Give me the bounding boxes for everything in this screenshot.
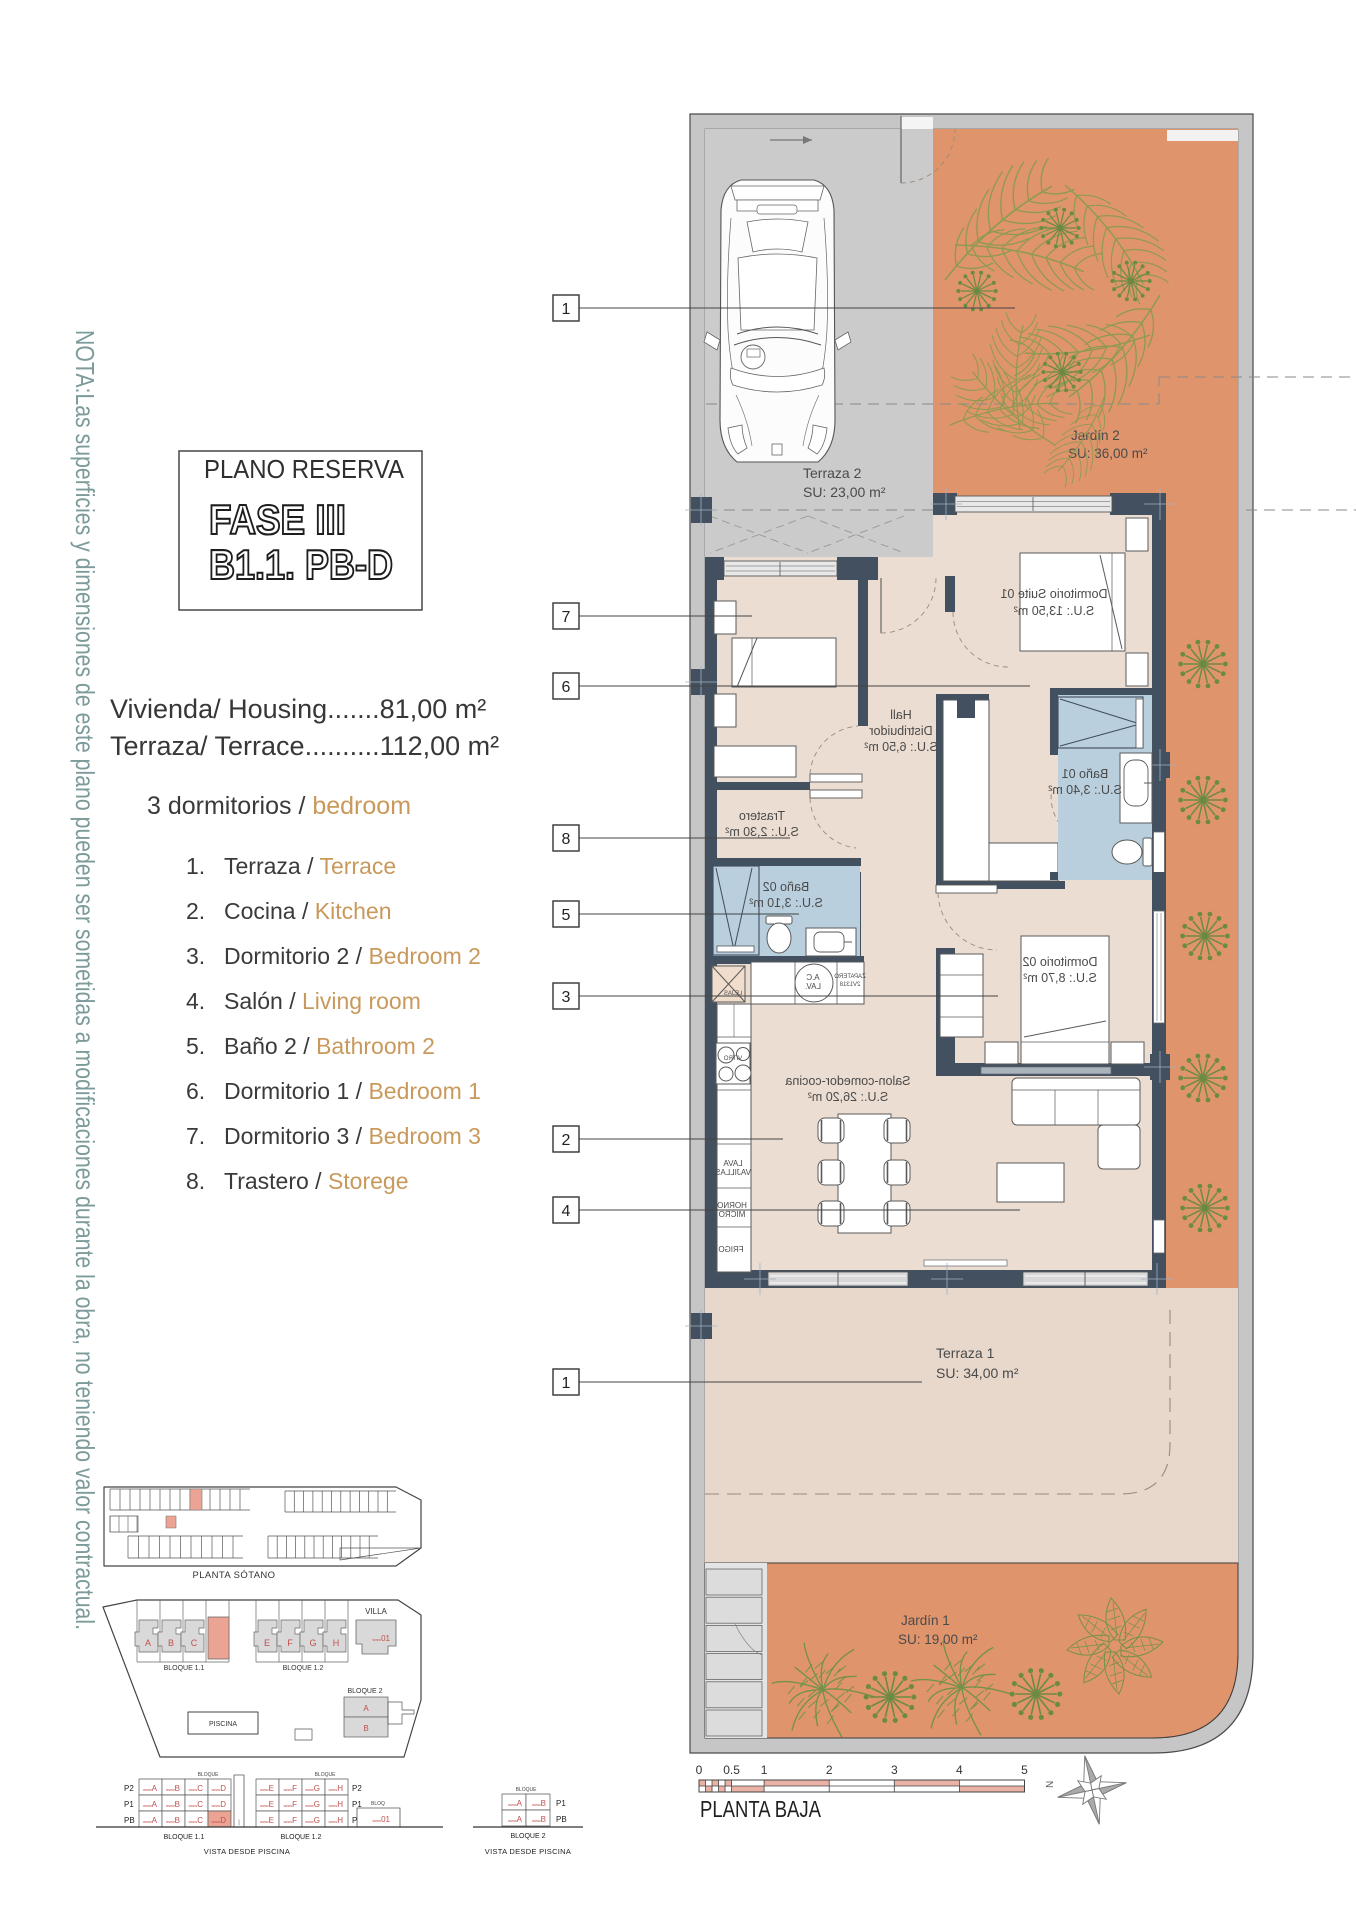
svg-text:P2: P2	[352, 1784, 362, 1793]
svg-text:A.C: A.C	[806, 973, 820, 982]
svg-text:2: 2	[826, 1763, 833, 1777]
svg-text:BLOQUE: BLOQUE	[198, 1772, 220, 1778]
svg-text:PISCINA: PISCINA	[209, 1721, 237, 1728]
svg-text:VISTA DESDE PISCINA: VISTA DESDE PISCINA	[485, 1847, 571, 1856]
svg-text:F: F	[287, 1638, 293, 1648]
svg-text:3.: 3.	[186, 943, 205, 969]
svg-text:BLOQUE 1.1: BLOQUE 1.1	[164, 1834, 205, 1841]
svg-text:VILLA: VILLA	[365, 1607, 387, 1616]
svg-text:SU: 34,00 m²: SU: 34,00 m²	[936, 1365, 1019, 1381]
svg-text:6: 6	[562, 679, 571, 696]
svg-text:PLANO RESERVA: PLANO RESERVA	[204, 454, 405, 484]
svg-text:A: A	[145, 1638, 151, 1648]
svg-text:Hall: Hall	[890, 708, 912, 722]
svg-text:BLOQUE 1.1: BLOQUE 1.1	[164, 1665, 205, 1672]
svg-text:0.5: 0.5	[723, 1763, 740, 1777]
svg-text:SU: 36,00 m²: SU: 36,00 m²	[1068, 446, 1148, 461]
svg-text:4: 4	[956, 1763, 963, 1777]
svg-text:PLANTA BAJA: PLANTA BAJA	[700, 1796, 821, 1822]
svg-text:PB: PB	[556, 1815, 567, 1824]
svg-text:1.: 1.	[186, 853, 205, 879]
svg-text:Dormitorio Suite 01: Dormitorio Suite 01	[1000, 587, 1107, 601]
svg-text:Terraza 1: Terraza 1	[936, 1345, 995, 1361]
svg-text:P1: P1	[556, 1799, 566, 1808]
svg-text:Trastero / Storege: Trastero / Storege	[224, 1168, 409, 1194]
svg-text:VITRO: VITRO	[724, 1056, 743, 1062]
svg-text:G: G	[309, 1638, 316, 1648]
svg-text:C: C	[191, 1638, 198, 1648]
svg-text:FASE III: FASE III	[209, 496, 346, 543]
svg-text:SU: 19,00 m²: SU: 19,00 m²	[898, 1632, 978, 1647]
svg-text:Salon-comedor-cocina: Salon-comedor-cocina	[785, 1074, 910, 1088]
svg-text:Dormitorio 02: Dormitorio 02	[1022, 955, 1097, 969]
svg-text:Distribuidor: Distribuidor	[869, 724, 932, 738]
svg-text:Baño 2 / Bathroom 2: Baño 2 / Bathroom 2	[224, 1033, 435, 1059]
svg-text:2.: 2.	[186, 898, 205, 924]
svg-text:2: 2	[562, 1132, 571, 1149]
svg-text:BLOQUE 2: BLOQUE 2	[347, 1688, 382, 1695]
svg-text:H: H	[333, 1638, 340, 1648]
svg-text:3: 3	[562, 989, 571, 1006]
svg-text:PLANTA SÓTANO: PLANTA SÓTANO	[193, 1570, 276, 1581]
svg-text:B: B	[168, 1638, 174, 1648]
svg-text:8.: 8.	[186, 1168, 205, 1194]
svg-text:0: 0	[696, 1763, 703, 1777]
svg-text:Dormitorio 1 / Bedroom 1: Dormitorio 1 / Bedroom 1	[224, 1078, 481, 1104]
svg-text:8: 8	[562, 831, 571, 848]
svg-text:BLOQUE: BLOQUE	[315, 1772, 337, 1778]
svg-text:Dormitorio 3 / Bedroom 3: Dormitorio 3 / Bedroom 3	[224, 1123, 481, 1149]
svg-text:BLOQUE 1.2: BLOQUE 1.2	[283, 1665, 324, 1672]
svg-text:S.U.: 6,50 m²: S.U.: 6,50 m²	[864, 740, 938, 754]
svg-text:3 dormitorios / bedroom: 3 dormitorios / bedroom	[147, 792, 411, 820]
svg-text:HORNO: HORNO	[717, 1201, 747, 1210]
svg-text:5: 5	[1021, 1763, 1028, 1777]
svg-text:Vivienda/ Housing.......81,00: Vivienda/ Housing.......81,00 m²	[110, 694, 486, 724]
svg-text:Dormitorio 2 / Bedroom 2: Dormitorio 2 / Bedroom 2	[224, 943, 481, 969]
svg-text:1: 1	[761, 1763, 768, 1777]
svg-text:VAJILLAS: VAJILLAS	[715, 1168, 751, 1177]
svg-text:Jardín 1: Jardín 1	[901, 1613, 950, 1628]
svg-text:BLOQ: BLOQ	[371, 1801, 385, 1807]
svg-text:S.U.: 8,70 m²: S.U.: 8,70 m²	[1023, 971, 1097, 985]
svg-text:7.: 7.	[186, 1123, 205, 1149]
svg-text:MICRO: MICRO	[719, 1210, 746, 1219]
svg-text:S.U.: 13,50 m²: S.U.: 13,50 m²	[1014, 604, 1095, 618]
svg-text:E: E	[264, 1638, 270, 1648]
svg-text:Terraza/ Terrace..........112,: Terraza/ Terrace..........112,00 m²	[110, 731, 499, 761]
svg-text:Terraza / Terrace: Terraza / Terrace	[224, 853, 396, 879]
svg-text:FRIGO: FRIGO	[718, 1245, 743, 1254]
svg-text:S.U.: 3,40 m²: S.U.: 3,40 m²	[1048, 783, 1122, 797]
svg-text:P1: P1	[124, 1800, 134, 1809]
svg-text:Baño 01: Baño 01	[1062, 767, 1109, 781]
svg-text:SU: 23,00 m²: SU: 23,00 m²	[803, 484, 886, 500]
svg-text:2V1318: 2V1318	[839, 982, 860, 988]
svg-text:Trastero: Trastero	[739, 809, 785, 823]
svg-text:1: 1	[562, 301, 571, 318]
svg-text:Baño 02: Baño 02	[763, 880, 810, 894]
svg-text:7: 7	[562, 609, 571, 626]
svg-text:Terraza 2: Terraza 2	[803, 465, 862, 481]
svg-text:S.U.: 3,10 m²: S.U.: 3,10 m²	[749, 896, 823, 910]
svg-text:VISTA DESDE PISCINA: VISTA DESDE PISCINA	[204, 1847, 290, 1856]
svg-text:LAVA: LAVA	[723, 1159, 743, 1168]
svg-text:5.: 5.	[186, 1033, 205, 1059]
svg-text:ZAPATERO: ZAPATERO	[834, 974, 866, 980]
svg-text:4: 4	[562, 1203, 571, 1220]
svg-text:B: B	[363, 1724, 368, 1733]
svg-text:BLOQUE 2: BLOQUE 2	[510, 1833, 545, 1840]
svg-text:LAV.: LAV.	[805, 982, 821, 991]
svg-text:BLOQUE: BLOQUE	[516, 1787, 538, 1793]
svg-text:1: 1	[562, 1375, 571, 1392]
svg-text:S.U.: 2,30 m²: S.U.: 2,30 m²	[725, 825, 799, 839]
svg-text:S.U.: 26,20 m²: S.U.: 26,20 m²	[808, 1090, 889, 1104]
svg-text:A: A	[363, 1704, 369, 1713]
svg-text:B1.1. PB-D: B1.1. PB-D	[209, 541, 393, 588]
svg-text:Salón / Living room: Salón / Living room	[224, 988, 421, 1014]
svg-text:N: N	[1045, 1781, 1056, 1788]
svg-text:Cocina / Kitchen: Cocina / Kitchen	[224, 898, 391, 924]
svg-text:4.: 4.	[186, 988, 205, 1014]
svg-text:BLOQUE 1.2: BLOQUE 1.2	[281, 1834, 322, 1841]
svg-text:PB: PB	[124, 1816, 135, 1825]
svg-text:Jardín 2: Jardín 2	[1071, 428, 1120, 443]
svg-text:P2: P2	[124, 1784, 134, 1793]
svg-text:3: 3	[891, 1763, 898, 1777]
svg-text:5: 5	[562, 907, 571, 924]
svg-text:6.: 6.	[186, 1078, 205, 1104]
svg-text:NOTA:Las superficies y dimensi: NOTA:Las superficies y dimensiones de es…	[70, 330, 100, 1630]
